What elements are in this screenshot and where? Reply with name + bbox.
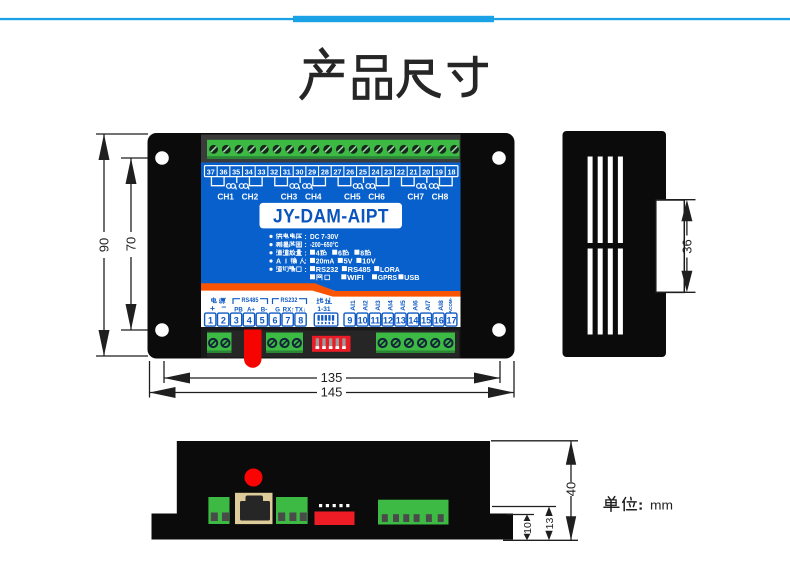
svg-text:135: 135	[321, 370, 343, 385]
svg-text:CH4: CH4	[305, 192, 322, 202]
svg-text:AI7: AI7	[425, 300, 432, 311]
svg-text:8: 8	[360, 250, 364, 257]
svg-text:JY-DAM-AIPT: JY-DAM-AIPT	[273, 206, 389, 227]
svg-text:19: 19	[435, 167, 443, 176]
svg-text:AI1: AI1	[350, 300, 357, 311]
svg-text:USB: USB	[404, 275, 419, 282]
svg-text:10: 10	[358, 316, 368, 326]
svg-text:CH3: CH3	[281, 192, 298, 202]
svg-text:GPRS: GPRS	[378, 275, 398, 282]
svg-text:20: 20	[422, 167, 430, 176]
svg-text:31: 31	[283, 167, 291, 176]
svg-text:1: 1	[208, 316, 213, 326]
svg-text:16: 16	[434, 316, 444, 326]
svg-text:DC 7-30V: DC 7-30V	[310, 234, 339, 241]
svg-text:AI3: AI3	[375, 300, 382, 311]
svg-text:3: 3	[234, 316, 239, 326]
svg-text:RS485: RS485	[348, 267, 371, 274]
svg-text:28: 28	[321, 167, 329, 176]
svg-text:RS232: RS232	[281, 297, 298, 304]
svg-text:CH1: CH1	[217, 192, 234, 202]
svg-text:CH6: CH6	[368, 192, 385, 202]
svg-text:24: 24	[372, 167, 380, 176]
svg-text:27: 27	[334, 167, 342, 176]
svg-text:12: 12	[383, 316, 393, 326]
svg-text:21: 21	[410, 167, 418, 176]
svg-text:37: 37	[207, 167, 215, 176]
svg-text:34: 34	[245, 167, 253, 176]
svg-text:mm: mm	[650, 498, 673, 513]
svg-text:RS485: RS485	[242, 297, 259, 304]
svg-text::: :	[304, 259, 306, 266]
svg-text:23: 23	[384, 167, 392, 176]
svg-text:33: 33	[257, 167, 265, 176]
svg-text:40: 40	[564, 482, 579, 496]
svg-text:ACOM-: ACOM-	[448, 297, 453, 313]
svg-text:AI6: AI6	[413, 300, 420, 311]
svg-text:29: 29	[308, 167, 316, 176]
svg-text:36: 36	[680, 239, 695, 253]
svg-text:CH7: CH7	[407, 192, 424, 202]
svg-text:11: 11	[371, 316, 381, 326]
svg-text:5: 5	[260, 316, 265, 326]
svg-text:6: 6	[272, 316, 277, 326]
svg-text:RS232: RS232	[316, 267, 339, 274]
svg-text:36: 36	[219, 167, 227, 176]
svg-text:CH8: CH8	[432, 192, 449, 202]
svg-text:CH2: CH2	[242, 192, 259, 202]
svg-text:2: 2	[221, 316, 226, 326]
svg-text::: :	[304, 250, 306, 257]
svg-text:13: 13	[544, 518, 556, 530]
svg-text:A: A	[276, 259, 281, 266]
svg-text:20mA: 20mA	[316, 259, 335, 266]
svg-text:145: 145	[321, 385, 343, 400]
svg-text:70: 70	[124, 237, 139, 251]
svg-text:35: 35	[232, 167, 240, 176]
svg-text:25: 25	[359, 167, 367, 176]
svg-text:7: 7	[285, 316, 290, 326]
svg-text:17: 17	[446, 316, 456, 326]
svg-text:WIFI: WIFI	[347, 275, 364, 282]
svg-text:6: 6	[338, 250, 342, 257]
svg-text::: :	[304, 267, 306, 274]
svg-text:14: 14	[408, 316, 418, 326]
svg-text:30: 30	[295, 167, 303, 176]
svg-text:AI2: AI2	[362, 300, 369, 311]
svg-text:AI5: AI5	[400, 300, 407, 311]
svg-text:1-31: 1-31	[317, 306, 331, 313]
svg-text:32: 32	[270, 167, 278, 176]
svg-text:10V: 10V	[362, 259, 376, 266]
svg-text:AI8: AI8	[438, 300, 445, 311]
svg-text:AI4: AI4	[388, 300, 395, 311]
svg-text::: :	[304, 242, 306, 249]
svg-text:-200~650°C: -200~650°C	[310, 241, 339, 249]
svg-text:CH5: CH5	[344, 192, 361, 202]
svg-text:4: 4	[247, 316, 252, 326]
svg-text:18: 18	[448, 167, 456, 176]
svg-text:I: I	[285, 259, 287, 266]
svg-text:9: 9	[347, 316, 352, 326]
svg-text:−: −	[222, 302, 227, 312]
svg-text:26: 26	[346, 167, 354, 176]
svg-text:13: 13	[396, 316, 406, 326]
svg-text:4: 4	[316, 250, 320, 257]
svg-text:+: +	[210, 303, 215, 313]
svg-text:5V: 5V	[344, 259, 353, 266]
svg-text:10: 10	[522, 522, 534, 534]
svg-text:90: 90	[97, 238, 112, 252]
svg-text:22: 22	[397, 167, 405, 176]
svg-text:8: 8	[298, 316, 303, 326]
svg-text::: :	[304, 234, 306, 241]
svg-text:LORA: LORA	[380, 267, 400, 274]
svg-text:15: 15	[421, 316, 431, 326]
